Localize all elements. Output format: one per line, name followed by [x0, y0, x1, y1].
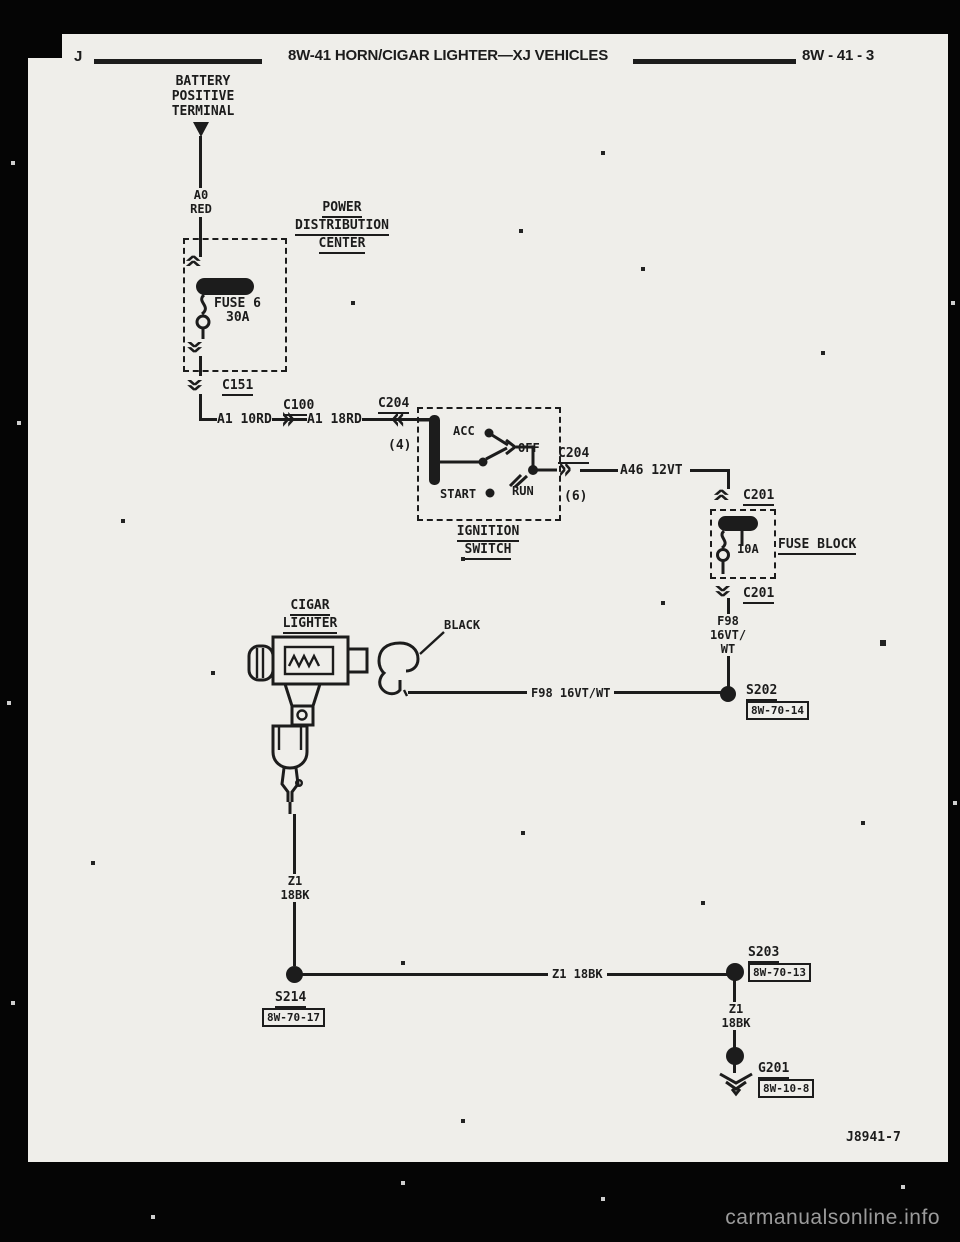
- wire-label-f98-horizontal: F98 16VT/WT: [527, 686, 614, 700]
- header-rule-right: [633, 59, 796, 64]
- cigar-lighter-drawing: [245, 632, 375, 732]
- scan-corner-blemish: [28, 34, 62, 58]
- noise-specks-light: [0, 0, 2, 2]
- wire-label-a0: A0 RED: [184, 188, 218, 216]
- wire-label-a1-10rd: A1 10RD: [217, 412, 272, 427]
- pdc-fuse-rating: 30A: [226, 310, 249, 325]
- fuse-block-fuse-rating: 10A: [737, 542, 759, 556]
- splice-s214-dot: [286, 966, 303, 983]
- page-title: 8W-41 HORN/CIGAR LIGHTER—XJ VEHICLES: [268, 47, 628, 64]
- battery-positive-terminal-label: BATTERY POSITIVE TERMINAL: [150, 74, 256, 119]
- wire-z1-horizontal: [302, 973, 728, 976]
- wire-label-z1-horizontal: Z1 18BK: [548, 967, 607, 981]
- header-rule-left: [94, 59, 262, 64]
- connector-label-c151: C151: [222, 378, 253, 396]
- connector-pin-c204-in: (4): [388, 438, 411, 453]
- pdc-fuse-name: FUSE 6: [214, 296, 261, 311]
- wire-a1-vertical: [199, 394, 202, 421]
- wire-a46-right: [690, 469, 730, 472]
- fuse-block-label: FUSE BLOCK: [778, 537, 856, 555]
- connector-chevron-c151-icon: »: [179, 378, 209, 390]
- ignition-position-acc: ACC: [453, 424, 475, 438]
- figure-code: J8941-7: [846, 1130, 901, 1145]
- power-distribution-center-label: POWER DISTRIBUTION CENTER: [292, 200, 392, 254]
- connector-chevron-c204-in-icon: «: [391, 405, 403, 435]
- battery-feed-arrow-icon: [193, 122, 209, 137]
- splice-s203-reference: 8W-70-13: [748, 963, 811, 982]
- connector-chevron-c201-in-icon: »: [707, 490, 737, 502]
- watermark-text: carmanualsonline.info: [640, 1206, 940, 1230]
- wire-label-a46: A46 12VT: [620, 463, 683, 478]
- wire-a46-left: [580, 469, 618, 472]
- scanned-wiring-diagram-page: J 8W-41 HORN/CIGAR LIGHTER—XJ VEHICLES 8…: [0, 0, 960, 1242]
- wire-label-a1-18rd: A1 18RD: [307, 412, 362, 427]
- wire-a0-upper: [199, 136, 202, 188]
- connector-color-label-black: BLACK: [444, 618, 480, 632]
- splice-s202-reference: 8W-70-14: [746, 701, 809, 720]
- splice-s214-reference: 8W-70-17: [262, 1008, 325, 1027]
- page-number: 8W - 41 - 3: [802, 47, 874, 64]
- connector-chevron-c201-out-icon: »: [707, 584, 737, 596]
- connector-chevron-down-pdc-icon: »: [179, 340, 209, 352]
- spade-terminal-drawing: [266, 724, 314, 816]
- connector-chevron-c100-icon: »: [281, 405, 293, 435]
- wire-pdc-out: [199, 356, 202, 376]
- ignition-position-run: RUN: [512, 484, 534, 498]
- ground-label-g201: G201: [758, 1061, 789, 1079]
- ignition-position-off: OFF: [518, 441, 540, 455]
- connector-chevron-c204-out-icon: »: [558, 455, 570, 485]
- wire-f98-lower: [727, 656, 730, 688]
- splice-s203-dot: [726, 963, 744, 981]
- wire-label-f98-vertical: F98 16VT/ WT: [703, 614, 753, 656]
- connector-pin-c204-out: (6): [564, 489, 587, 504]
- wire-label-z1-left: Z1 18BK: [277, 874, 313, 902]
- connector-chevron-up-pdc-icon: »: [179, 256, 209, 268]
- ground-g201-reference: 8W-10-8: [758, 1079, 814, 1098]
- splice-label-s214: S214: [275, 990, 306, 1008]
- ignition-switch-label: IGNITION SWITCH: [447, 524, 529, 560]
- splice-label-s202: S202: [746, 683, 777, 701]
- wire-label-z1-right: Z1 18BK: [717, 1002, 755, 1030]
- black-connector-drawing: [374, 640, 426, 698]
- connector-label-c201-out: C201: [743, 586, 774, 604]
- page-letter: J: [74, 48, 82, 65]
- connector-label-c201-in: C201: [743, 488, 774, 506]
- ground-symbol-icon: [718, 1072, 754, 1098]
- splice-s202-dot: [720, 686, 736, 702]
- ignition-position-start: START: [440, 487, 476, 501]
- cigar-lighter-label: CIGAR LIGHTER: [274, 598, 346, 634]
- paper-scan-area: [28, 34, 948, 1162]
- wire-f98-upper: [727, 598, 730, 614]
- ignition-switch-contacts: [417, 407, 557, 517]
- wire-a46-corner: [727, 469, 730, 489]
- splice-label-s203: S203: [748, 945, 779, 963]
